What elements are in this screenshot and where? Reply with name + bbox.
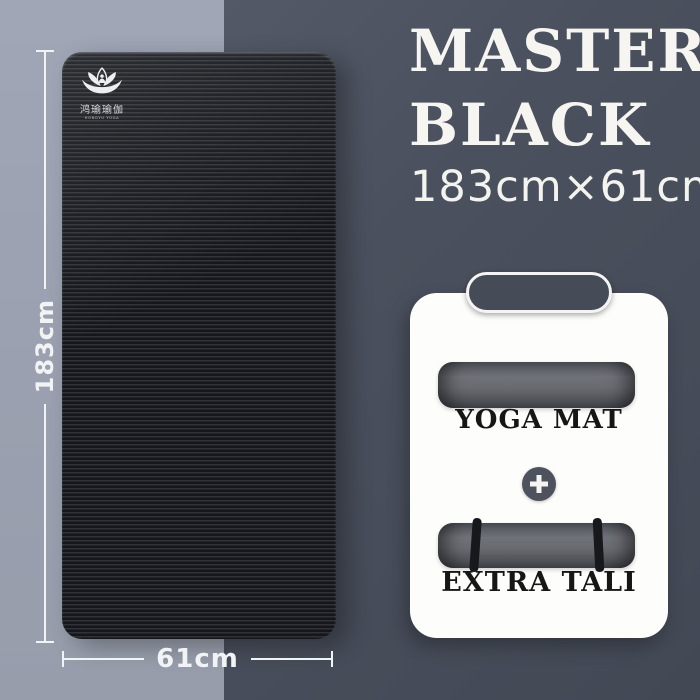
brand-logo: 鸿瑜瑜伽 HONGYU YOGA [70, 66, 134, 123]
product-title-line2: BLACK [409, 96, 650, 154]
dimension-line-right [251, 658, 331, 660]
dimension-cap-bottom [36, 641, 54, 643]
dimension-line-upper [44, 52, 46, 289]
product-banner: 鸿瑜瑜伽 HONGYU YOGA 183cm 61cm MASTER BLACK… [0, 0, 700, 700]
bundle-item-label-extra-tali: EXTRA TALI [410, 567, 668, 598]
length-dimension-label: 183cm [31, 289, 59, 403]
strap-left [469, 518, 482, 572]
brand-subtext: HONGYU YOGA [82, 116, 122, 120]
yoga-mat-image: 鸿瑜瑜伽 HONGYU YOGA [62, 52, 336, 639]
length-dimension: 183cm [35, 50, 55, 643]
rolled-yoga-mat-image [438, 362, 635, 408]
rolled-mat-with-straps-image [438, 523, 635, 568]
product-size-text: 183cm×61cm [410, 162, 700, 212]
product-title-line1: MASTER [409, 22, 700, 80]
width-dimension-label: 61cm [144, 644, 251, 674]
dimension-cap-right [331, 651, 333, 667]
dimension-line-lower [44, 404, 46, 641]
plus-icon: + [522, 467, 556, 501]
dimension-line-left [64, 658, 144, 660]
width-dimension: 61cm [62, 644, 333, 674]
clipboard-handle [466, 272, 612, 313]
lotus-icon [70, 66, 134, 100]
brand-name-text: 鸿瑜瑜伽 [70, 101, 134, 116]
bundle-item-label-yoga-mat: YOGA MAT [410, 405, 668, 435]
bundle-card: YOGA MAT + EXTRA TALI [410, 293, 668, 638]
strap-right [593, 518, 605, 572]
